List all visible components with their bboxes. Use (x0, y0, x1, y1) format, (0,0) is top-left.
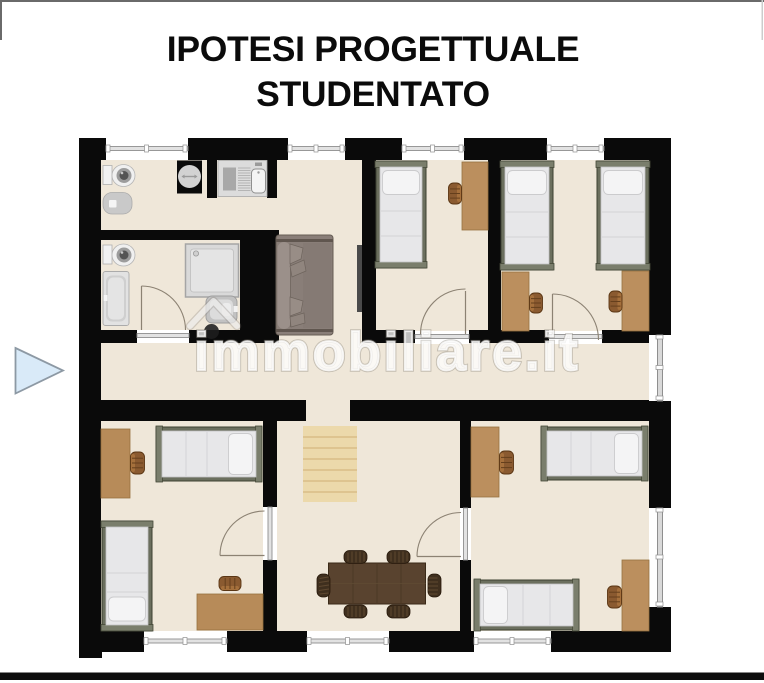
svg-text:STUDENTATO: STUDENTATO (256, 74, 490, 114)
svg-text:IPOTESI PROGETTUALE: IPOTESI PROGETTUALE (167, 29, 579, 69)
svg-text:immobiliare.it: immobiliare.it (194, 322, 580, 382)
